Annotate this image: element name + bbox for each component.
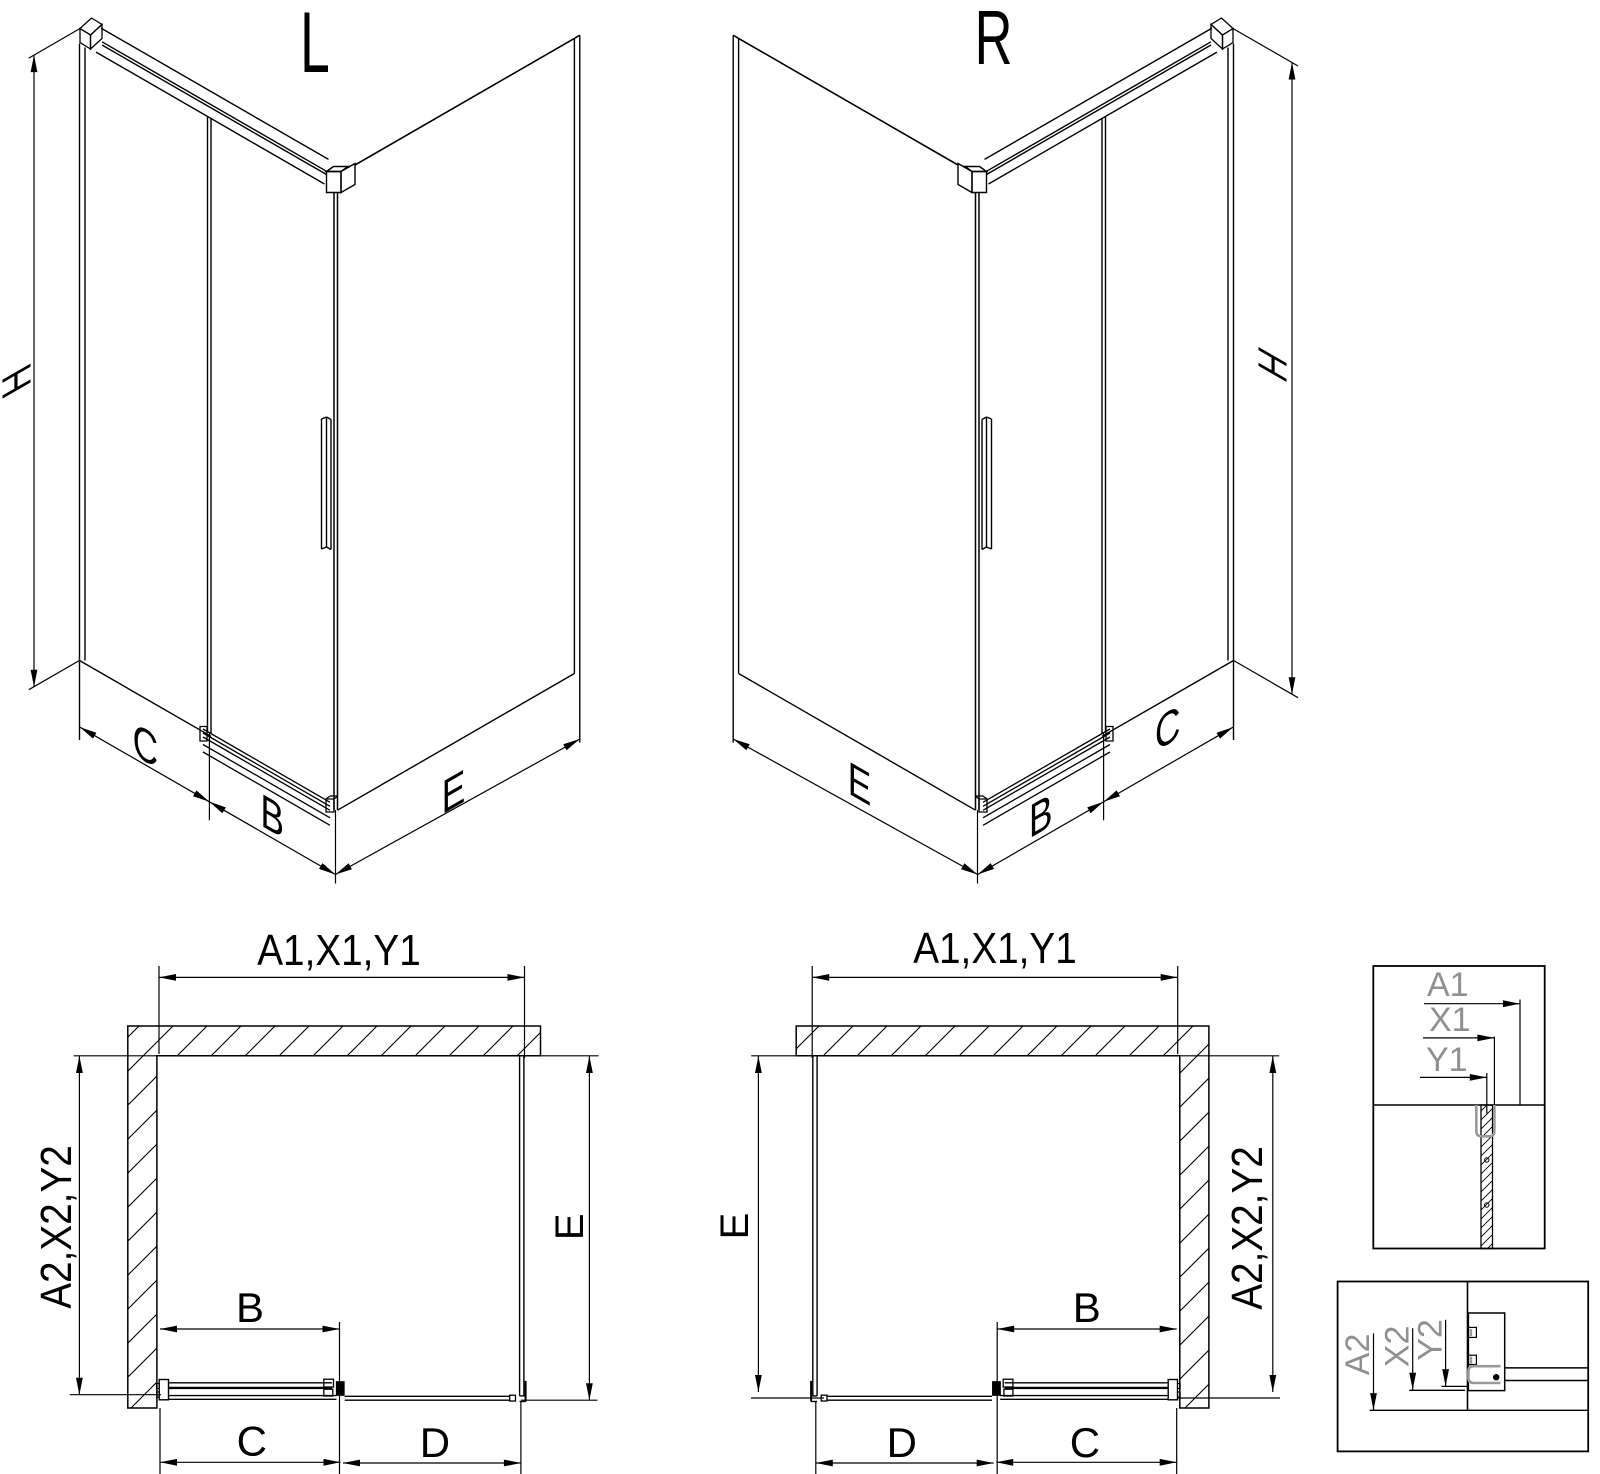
svg-text:Y2: Y2 xyxy=(1412,1319,1450,1361)
svg-text:Y1: Y1 xyxy=(1426,1041,1468,1079)
svg-text:R: R xyxy=(975,0,1013,80)
svg-text:C: C xyxy=(237,1418,267,1465)
svg-text:X1: X1 xyxy=(1429,1001,1471,1039)
svg-text:A2: A2 xyxy=(1339,1334,1377,1376)
svg-text:A1,X1,Y1: A1,X1,Y1 xyxy=(257,925,421,975)
svg-text:E: E xyxy=(548,1213,592,1240)
svg-text:L: L xyxy=(300,0,330,91)
svg-text:C: C xyxy=(1070,1419,1100,1466)
svg-text:D: D xyxy=(887,1419,917,1466)
svg-text:B: B xyxy=(236,1284,264,1331)
svg-text:E: E xyxy=(713,1213,757,1240)
svg-text:A1,X1,Y1: A1,X1,Y1 xyxy=(913,923,1077,973)
svg-text:A2,X2,Y2: A2,X2,Y2 xyxy=(1222,1146,1272,1310)
svg-text:A2,X2,Y2: A2,X2,Y2 xyxy=(31,1145,81,1309)
svg-text:B: B xyxy=(1073,1284,1101,1331)
svg-text:A1: A1 xyxy=(1427,966,1469,1004)
svg-text:D: D xyxy=(420,1419,450,1466)
